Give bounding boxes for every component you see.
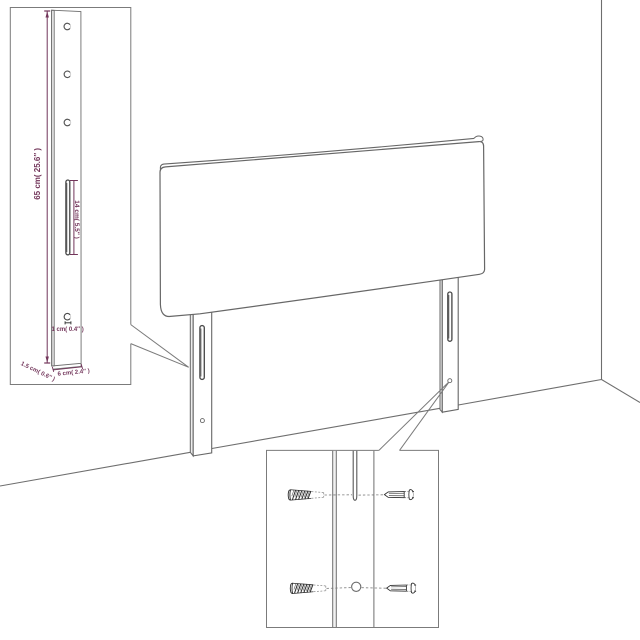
svg-text:1.5 cm( 0.6″ ): 1.5 cm( 0.6″ ) — [20, 361, 56, 383]
svg-text:1 cm( 0.4″ ): 1 cm( 0.4″ ) — [52, 327, 84, 333]
svg-text:6 cm( 2.4″ ): 6 cm( 2.4″ ) — [57, 368, 90, 377]
svg-text:65 cm( 25.6″ ): 65 cm( 25.6″ ) — [33, 148, 42, 200]
svg-text:14 cm( 5.5″ ): 14 cm( 5.5″ ) — [73, 200, 80, 239]
